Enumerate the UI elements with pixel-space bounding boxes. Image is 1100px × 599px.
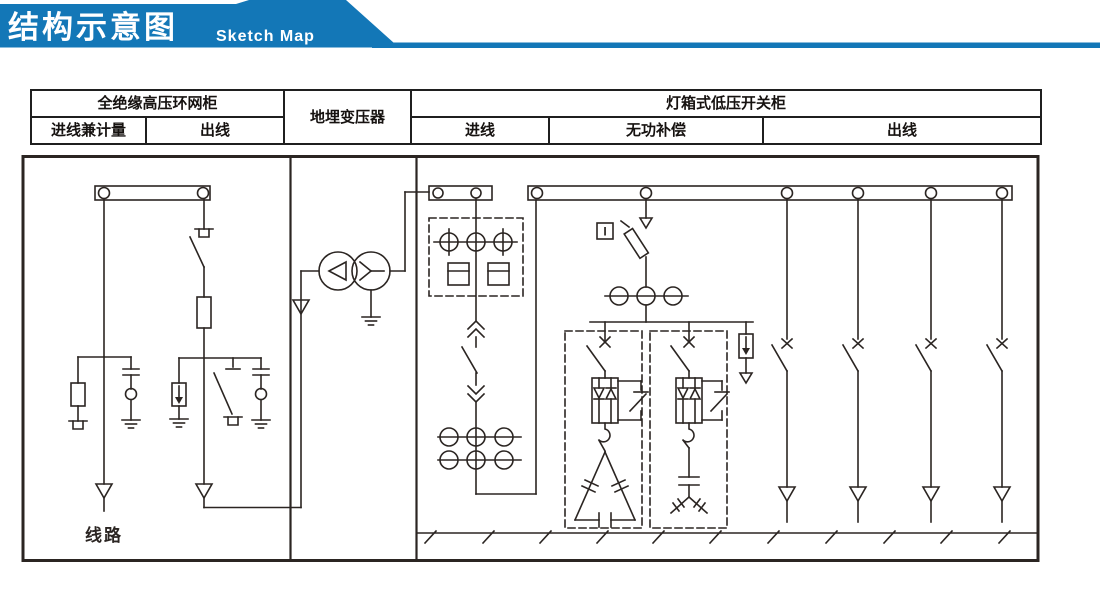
- bypass-switch: [702, 381, 729, 420]
- star-capacitor: [671, 448, 707, 513]
- transformer-section: [293, 192, 429, 508]
- outgoing-arrow: [196, 484, 212, 498]
- meter-symbol: [448, 263, 469, 285]
- hv-incoming-feeder: [69, 199, 140, 511]
- switch-contact: [195, 229, 213, 237]
- flow-arrow: [640, 218, 652, 228]
- earthing-switch-symbol: [214, 358, 242, 425]
- outgoing-feeder-1: [772, 199, 795, 522]
- load-switch-blade: [190, 237, 204, 267]
- reactor-symbol: [683, 423, 694, 448]
- lv-main-busbar: [528, 186, 1012, 200]
- delta-capacitor: [575, 452, 635, 527]
- fuse-switch-symbol: [621, 221, 648, 287]
- wye-winding: [360, 262, 384, 280]
- voltage-indicator-symbol: [252, 358, 270, 428]
- outgoing-feeder-3: [916, 199, 939, 522]
- cable-trench: [418, 531, 1036, 543]
- line-label: 线路: [85, 525, 123, 545]
- surge-arrester-symbol: [170, 358, 188, 427]
- lv-incoming-busbar: [429, 186, 492, 200]
- outgoing-feeder-4: [987, 199, 1010, 522]
- current-transformers: [438, 428, 521, 469]
- hv-outgoing-feeder: [170, 199, 301, 508]
- voltage-indicator-symbol: [122, 357, 140, 428]
- transformer-symbol: [319, 252, 390, 290]
- drawout-breaker-symbol: [462, 321, 484, 402]
- outgoing-arrow: [96, 484, 112, 498]
- lv-outgoing-section: [772, 199, 1010, 522]
- lv-surge-arrester: [739, 322, 753, 383]
- delta-winding: [329, 262, 346, 280]
- instrument-label: I: [603, 225, 606, 239]
- diagram-frame: [23, 157, 1038, 561]
- lv-incoming-section: [429, 186, 536, 494]
- thyristor-switch: [592, 378, 618, 423]
- compensation-section: I: [565, 199, 753, 528]
- reactor-symbol: [599, 423, 610, 451]
- outgoing-feeder-2: [843, 199, 866, 522]
- single-line-diagram: 线路: [0, 0, 1100, 599]
- capacitor-bank-2: [650, 322, 729, 528]
- capacitor-bank-1: [565, 322, 648, 528]
- bypass-switch: [618, 381, 648, 420]
- current-transformers: [605, 287, 688, 305]
- thyristor-switch: [676, 378, 702, 423]
- ground-symbol: [362, 317, 380, 325]
- hv-section: 线路: [69, 186, 301, 545]
- hv-busbar: [95, 186, 210, 200]
- meter-symbol: [488, 263, 509, 285]
- surge-arrester-symbol: [69, 357, 87, 429]
- fuse-symbol: [197, 297, 211, 328]
